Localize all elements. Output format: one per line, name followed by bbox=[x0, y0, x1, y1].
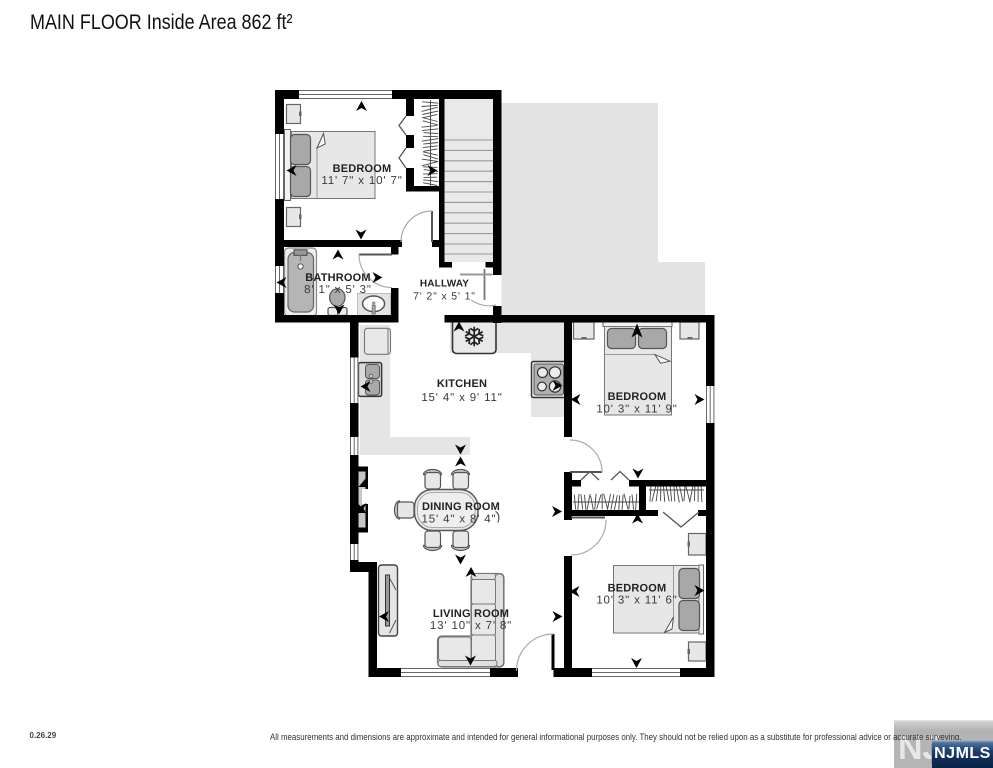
svg-text:8' 1" x 5' 3": 8' 1" x 5' 3" bbox=[304, 284, 372, 296]
svg-text:15' 4" x 9' 11": 15' 4" x 9' 11" bbox=[421, 392, 502, 404]
svg-text:BEDROOM: BEDROOM bbox=[333, 163, 392, 175]
svg-text:7' 2" x 5' 1": 7' 2" x 5' 1" bbox=[413, 291, 476, 303]
svg-text:11' 7" x 10' 7": 11' 7" x 10' 7" bbox=[321, 175, 402, 187]
svg-text:BATHROOM: BATHROOM bbox=[305, 272, 371, 284]
svg-text:BEDROOM: BEDROOM bbox=[608, 391, 667, 403]
svg-text:13' 10" x 7' 8": 13' 10" x 7' 8" bbox=[430, 620, 512, 632]
svg-text:BEDROOM: BEDROOM bbox=[608, 583, 667, 595]
svg-text:DINING ROOM: DINING ROOM bbox=[422, 501, 500, 513]
svg-text:10' 3" x 11' 6": 10' 3" x 11' 6" bbox=[596, 595, 677, 607]
svg-text:10' 3" x 11' 9": 10' 3" x 11' 9" bbox=[596, 404, 677, 416]
svg-text:KITCHEN: KITCHEN bbox=[437, 378, 487, 390]
svg-text:LIVING ROOM: LIVING ROOM bbox=[433, 608, 509, 620]
svg-text:HALLWAY: HALLWAY bbox=[420, 279, 469, 290]
svg-text:15' 4" x 8' 4": 15' 4" x 8' 4" bbox=[422, 514, 497, 526]
